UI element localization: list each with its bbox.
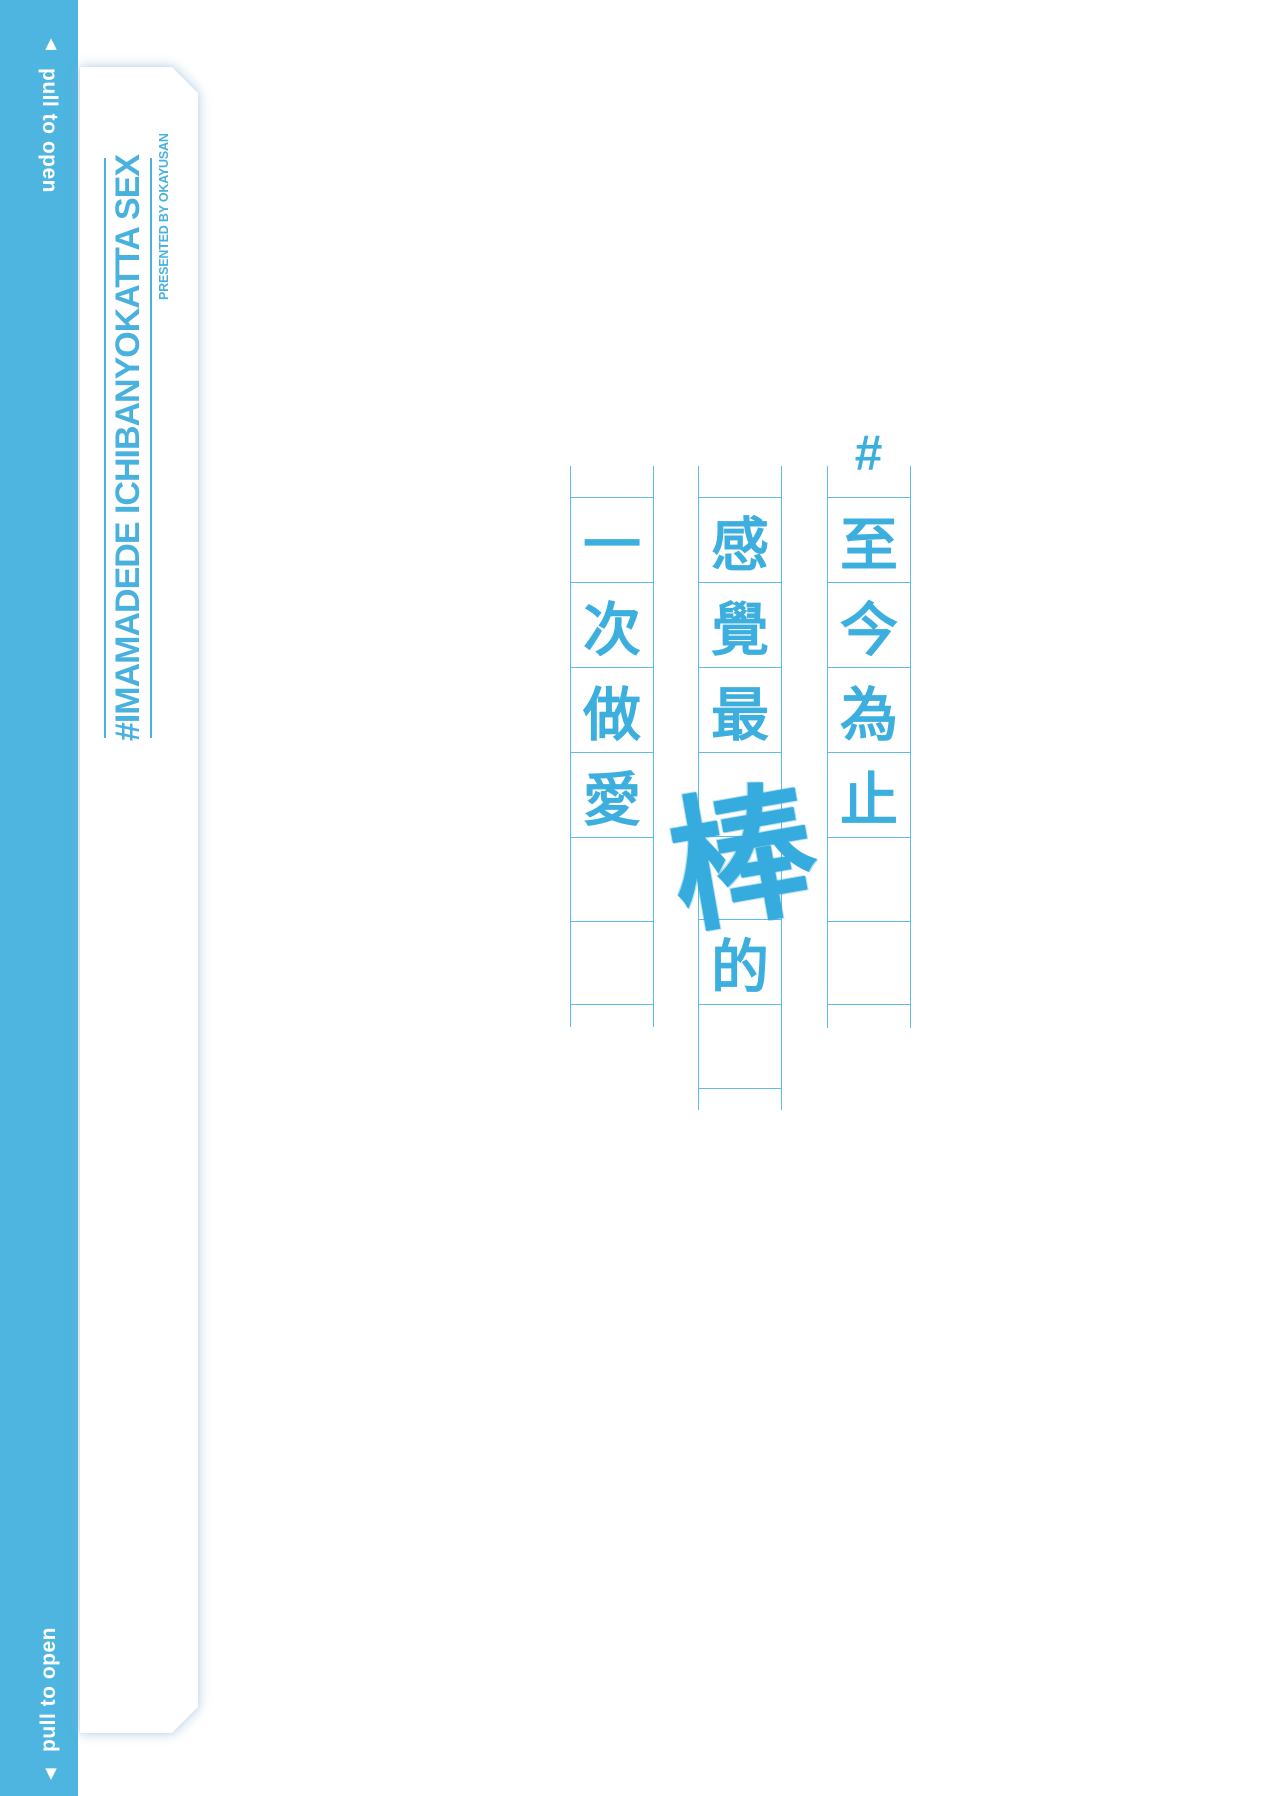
grid-cell [699,1004,781,1088]
scribble-char: 棒 [649,755,832,938]
doujin-inner-cover-page: ▲ pull to open pull to open ▼ #IMAMADEDE… [0,0,1280,1796]
grid-cell: 止 [828,752,910,837]
grid-cell: 次 [571,582,653,667]
grid-tail [699,1088,781,1111]
grid-cell: 為 [828,667,910,752]
grid-stub [571,466,653,497]
grid-cell: 做 [571,667,653,752]
spine-bar [0,0,78,1796]
grid-cell: 今 [828,582,910,667]
grid-cell [571,837,653,921]
grid-tail [828,1004,910,1028]
arrow-up-icon: ▲ [41,36,61,51]
grid-cell [828,837,910,921]
grid-cell: 覺 [699,582,781,667]
grid-cell: 感 [699,497,781,582]
manuscript-column-right: 至 今 為 止 [827,466,911,1028]
cover-credit: PRESENTED BY OKAYUSAN [154,158,174,300]
grid-cell: 至 [828,497,910,582]
arrow-down-icon: ▼ [41,1766,61,1781]
pull-to-open-label-top: pull to open [36,68,62,188]
grid-stub [699,466,781,497]
grid-tail [571,1004,653,1027]
grid-cell: 愛 [571,752,653,837]
manuscript-column-left: 一 次 做 愛 [570,466,654,1027]
grid-cell [571,921,653,1005]
cover-title: #IMAMADEDE ICHIBANYOKATTA SEX [104,158,152,738]
pull-to-open-label-bottom: pull to open [36,1632,62,1752]
grid-stub [828,466,910,497]
grid-cell [828,921,910,1005]
grid-cell: 一 [571,497,653,582]
